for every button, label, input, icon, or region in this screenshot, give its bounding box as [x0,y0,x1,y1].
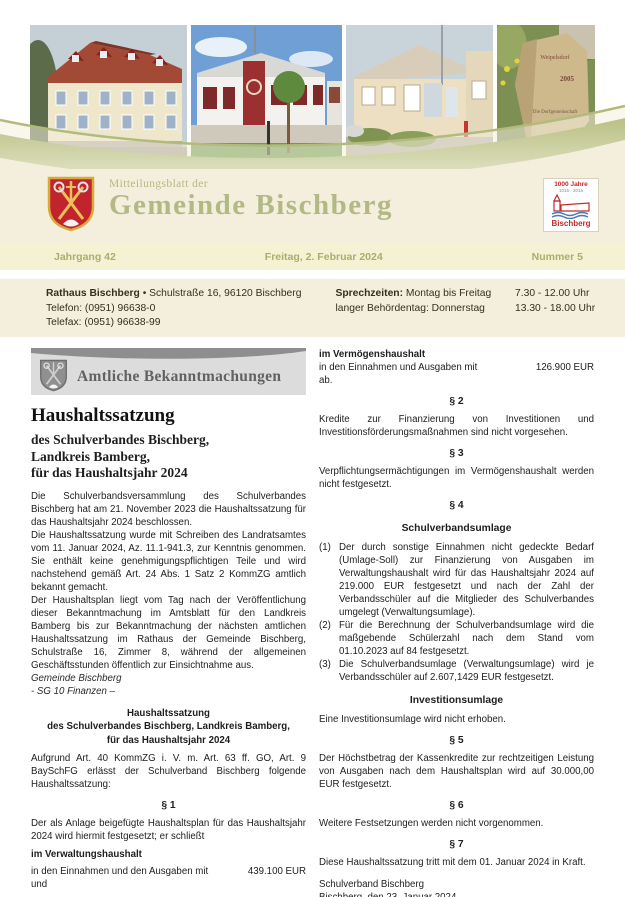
subtitle-line1: des Schulverbandes Bischberg, [31,432,209,447]
right-column: im Vermögenshaushalt in den Einnahmen un… [319,348,594,897]
paragraph-section3: Verpflichtungsermächtigungen im Vermögen… [319,465,594,491]
left-column: Amtliche Bekanntmachungen Haushaltssatzu… [31,348,306,897]
banner-title: Amtliche Bekanntmachungen [77,370,281,383]
contact-address-block: Rathaus Bischberg • Schulstraße 16, 9612… [46,287,324,329]
issue-bar: Jahrgang 42 Freitag, 2. Februar 2024 Num… [0,243,625,270]
logo-line1: 1000 Jahre [554,181,588,188]
list-item-3-num: (3) [319,658,336,684]
photo-school-building [191,25,342,163]
vwh-amount: 439.100 EUR [248,865,306,878]
statute-heading-line3: für das Haushaltsjahr 2024 [107,735,230,746]
stone-inscription-line3: Die Dorfgemeinschaft [533,110,578,115]
paragraph-legal-basis: Aufgrund Art. 40 KommZG i. V. m. Art. 63… [31,752,306,791]
contact-phone: Telefon: (0951) 96638-0 [46,302,324,317]
hours-label: Sprechzeiten: [336,288,404,299]
issue-number: Nummer 5 [532,251,583,263]
photo-community-hall [346,25,493,163]
contact-fax: Telefax: (0951) 96638-99 [46,316,324,331]
masthead-title: Gemeinde Bischberg [109,190,393,220]
photo-memorial-stone: Weipelsdorf 2005 Die Dorfgemeinschaft [497,25,595,163]
vmh-amount: 126.900 EUR [536,361,594,374]
statute-heading: Haushaltssatzung des Schulverbandes Bisc… [31,707,306,748]
contact-name: Rathaus Bischberg [46,288,140,299]
stone-inscription-line2: 2005 [560,75,575,83]
subtitle-line3: für das Haushaltsjahr 2024 [31,465,188,480]
hours-row2-time: 13.30 - 18.00 Uhr [515,302,601,317]
paragraph-investitionsumlage: Eine Investitionsumlage wird nicht erhob… [319,713,594,726]
signature-place-date: Bischberg, den 23. Januar 2024 [319,891,594,897]
list-item-2-num: (2) [319,619,336,658]
list-item-1-num: (1) [319,541,336,619]
paragraph-section2: Kredite zur Finanzierung von Investition… [319,413,594,439]
section-5-sign: § 5 [319,734,594,747]
newsletter-page: Weipelsdorf 2005 Die Dorfgemeinschaft [0,0,625,897]
photo-strip: Weipelsdorf 2005 Die Dorfgemeinschaft [30,25,595,163]
vmh-text: in den Einnahmen und Ausgaben mit [319,361,477,374]
paragraph-section7: Diese Haushaltssatzung tritt mit dem 01.… [319,856,594,869]
paragraph-resolution: Die Schulverbandsversammlung des Schulve… [31,490,306,529]
hours-row1-time: 7.30 - 12.00 Uhr [515,287,601,302]
section-2-sign: § 2 [319,395,594,408]
schulverbandsumlage-heading: Schulverbandsumlage [319,522,594,535]
subtitle-line2: Landkreis Bamberg, [31,449,150,464]
paragraph-section1: Der als Anlage beigefügte Haushaltsplan … [31,817,306,843]
divider-gap [0,270,625,279]
logo-church-drawing-icon [549,193,593,219]
logo-1000-jahre-bischberg: 1000 Jahre 1015 - 2015 Bischberg [543,178,599,232]
statute-heading-line1: Haushaltssatzung [127,708,210,719]
list-item-2-text: Für die Berechnung der Schulverbandsumla… [339,619,594,658]
stone-inscription-line1: Weipelsdorf [540,54,569,61]
office-hours-block: Sprechzeiten: Montag bis Freitag 7.30 - … [324,287,602,329]
und-line: und [31,878,306,891]
signature-block: Schulverband Bischberg Bischberg, den 23… [319,878,594,897]
verwaltungshaushalt-label: im Verwaltungshaushalt [31,848,306,861]
list-item-3: (3) Die Schulverbandsumlage (Verwaltungs… [319,658,594,684]
signature-org: Schulverband Bischberg [319,878,594,891]
official-announcements-banner: Amtliche Bekanntmachungen [31,348,306,395]
list-item-1-text: Der durch sonstige Einnahmen nicht gedec… [339,541,594,619]
vermoegenshaushalt-label: im Vermögenshaushalt [319,348,594,361]
bischberg-coat-of-arms-icon [46,176,96,232]
section-4-sign: § 4 [319,499,594,512]
logo-line3: Bischberg [551,219,590,228]
issuer-line: Gemeinde Bischberg [31,672,306,685]
section-3-sign: § 3 [319,447,594,460]
hours-row1-text: Montag bis Freitag [403,288,491,299]
section-1-sign: § 1 [31,799,306,812]
investitionsumlage-heading: Investitionsumlage [319,694,594,707]
list-item-1: (1) Der durch sonstige Einnahmen nicht g… [319,541,594,619]
statute-heading-line2: des Schulverbandes Bischberg, Landkreis … [47,721,290,732]
header-photo-area: Weipelsdorf 2005 Die Dorfgemeinschaft [0,0,625,169]
issue-date: Freitag, 2. Februar 2024 [116,251,532,263]
paragraph-approval: Die Haushaltssatzung wurde mit Schreiben… [31,529,306,594]
banner-swoosh-icon [31,348,306,362]
list-item-3-text: Die Schulverbandsumlage (Verwaltungsumla… [339,658,594,684]
paragraph-inspection: Der Haushaltsplan liegt vom Tag nach der… [31,594,306,672]
vwh-text: in den Einnahmen und den Ausgaben mit [31,865,208,878]
hours-row2-text: langer Behördentag: Donnerstag [336,302,508,317]
issuer-dept-line: - SG 10 Finanzen – [31,685,306,698]
paragraph-section5: Der Höchstbetrag der Kassenkredite zur r… [319,752,594,791]
paragraph-section6: Weitere Festsetzungen werden nicht vorge… [319,817,594,830]
article-subtitle: des Schulverbandes Bischberg, Landkreis … [31,432,306,482]
vermoegenshaushalt-row: in den Einnahmen und Ausgaben mit 126.90… [319,361,594,374]
contact-box: Rathaus Bischberg • Schulstraße 16, 9612… [0,279,625,337]
issue-volume: Jahrgang 42 [54,251,116,263]
photo-manor-house [30,25,187,163]
article-columns: Amtliche Bekanntmachungen Haushaltssatzu… [0,348,625,897]
coat-of-arms-grayscale-icon [39,359,68,392]
list-item-2: (2) Für die Berechnung der Schulverbands… [319,619,594,658]
article-title: Haushaltssatzung [31,409,306,422]
verwaltungshaushalt-row: in den Einnahmen und den Ausgaben mit 43… [31,865,306,878]
masthead: Mitteilungsblatt der Gemeinde Bischberg … [0,169,625,243]
section-6-sign: § 6 [319,799,594,812]
section-7-sign: § 7 [319,838,594,851]
contact-address: • Schulstraße 16, 96120 Bischberg [140,288,302,299]
ab-line: ab. [319,374,594,387]
